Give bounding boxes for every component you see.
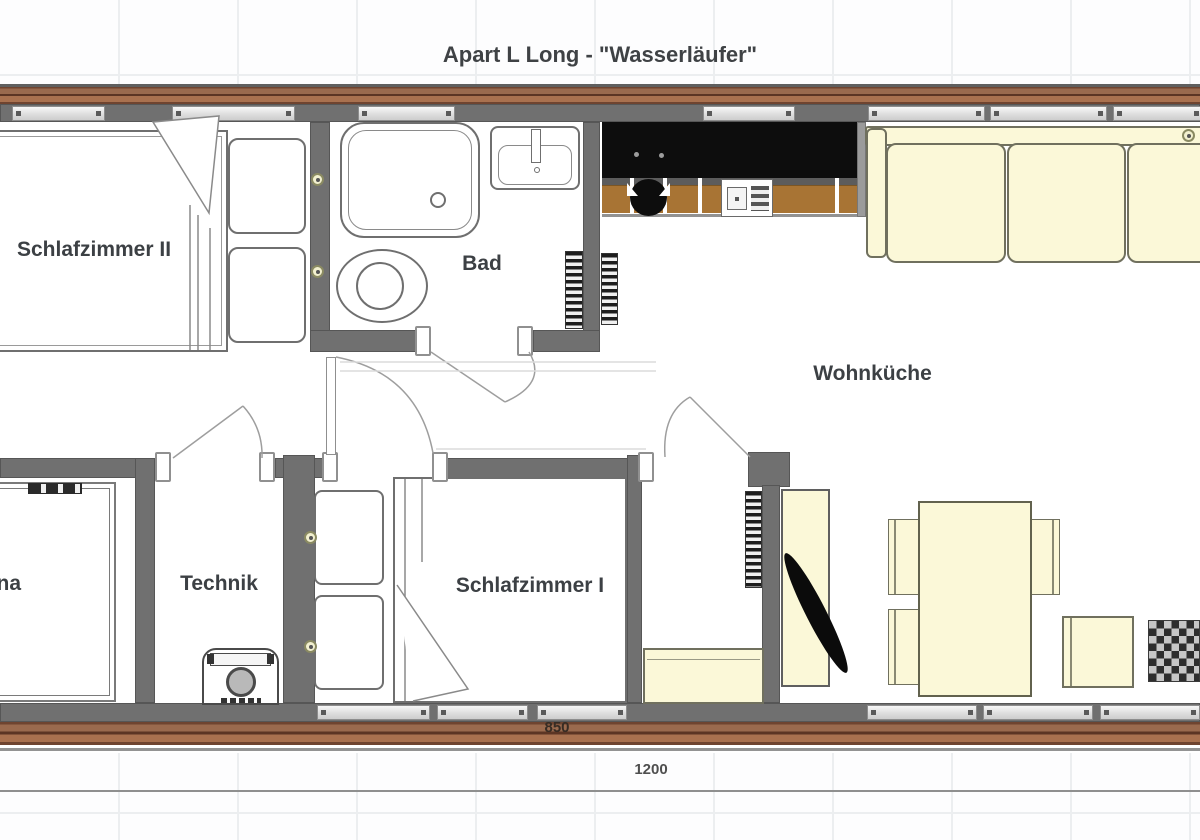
dining-table bbox=[918, 501, 1032, 697]
top-wall-wood bbox=[0, 87, 1200, 104]
sofa-cushion bbox=[1007, 143, 1126, 263]
door-jamb bbox=[322, 452, 338, 482]
bottom-wall-line bbox=[0, 748, 1200, 751]
sauna-heater bbox=[28, 483, 82, 494]
toilet bbox=[336, 249, 428, 323]
window bbox=[867, 705, 977, 720]
bench bbox=[643, 648, 764, 704]
hinge-pivot bbox=[1182, 129, 1195, 142]
wall-pillar bbox=[748, 452, 790, 487]
grid-line bbox=[0, 74, 1200, 76]
door-jamb bbox=[259, 452, 275, 482]
faucet-dot bbox=[659, 153, 664, 158]
entrance-mat bbox=[1148, 620, 1200, 682]
window bbox=[868, 106, 985, 121]
hinge-pivot bbox=[311, 173, 324, 186]
radiator bbox=[601, 253, 618, 325]
chair bbox=[1030, 519, 1060, 595]
window bbox=[537, 705, 627, 720]
window bbox=[358, 106, 455, 121]
chair-back bbox=[892, 520, 896, 594]
shower-tray bbox=[348, 130, 472, 230]
radiator bbox=[745, 491, 762, 588]
faucet bbox=[531, 129, 541, 163]
sofa-armrest bbox=[866, 128, 887, 258]
wall-bad-bottom-right bbox=[533, 330, 600, 352]
toilet-bowl bbox=[356, 262, 404, 310]
chair bbox=[1062, 616, 1134, 688]
washer-knob bbox=[207, 654, 214, 664]
door-jamb bbox=[155, 452, 171, 482]
window bbox=[12, 106, 105, 121]
kitchen-counter-top bbox=[602, 122, 860, 178]
floor-plan: Apart L Long - "Wasserläufer" 850 1200 bbox=[0, 0, 1200, 840]
room-label-sauna: Sauna bbox=[0, 572, 21, 596]
sink-dot bbox=[735, 197, 739, 201]
wall-technik-schlafzimmer1 bbox=[283, 455, 315, 703]
hinge-pivot bbox=[304, 531, 317, 544]
window bbox=[703, 106, 795, 121]
wall-sauna-technik bbox=[135, 458, 155, 703]
chair bbox=[888, 609, 920, 685]
window bbox=[437, 705, 528, 720]
chair-back bbox=[1070, 618, 1072, 686]
wardrobe bbox=[314, 595, 384, 690]
dimension-label-850: 850 bbox=[500, 719, 614, 736]
washer-knob bbox=[267, 654, 274, 664]
door-jamb bbox=[415, 326, 431, 356]
bench-edge bbox=[647, 652, 760, 660]
chair-back bbox=[1052, 520, 1056, 594]
plan-title: Apart L Long - "Wasserläufer" bbox=[0, 42, 1200, 68]
washer-drum bbox=[226, 667, 256, 697]
dimension-label-1200: 1200 bbox=[598, 761, 704, 778]
window bbox=[317, 705, 430, 720]
wall-schlafzimmer1-right bbox=[627, 455, 642, 703]
window bbox=[983, 705, 1093, 720]
chair-back bbox=[892, 610, 896, 684]
bathroom-sink bbox=[490, 126, 580, 190]
window bbox=[1113, 106, 1200, 121]
shower bbox=[340, 122, 480, 238]
grid-line bbox=[0, 812, 1200, 814]
room-label-schlafzimmer2: Schlafzimmer II bbox=[0, 238, 194, 262]
chair bbox=[888, 519, 920, 595]
faucet-dot bbox=[634, 152, 639, 157]
window bbox=[990, 106, 1107, 121]
sofa-cushion bbox=[1127, 143, 1200, 263]
room-label-schlafzimmer1: Schlafzimmer I bbox=[440, 574, 620, 598]
wall-lower-row-a bbox=[0, 458, 157, 478]
kitchen-basin bbox=[630, 179, 667, 216]
wall-bad-right bbox=[583, 122, 600, 352]
washer-panel bbox=[210, 653, 271, 666]
door-leaf bbox=[326, 357, 336, 455]
towel-radiator bbox=[565, 251, 583, 329]
wall-bad-bottom-left bbox=[310, 330, 417, 352]
wardrobe bbox=[228, 247, 306, 343]
wall-schlafzimmer2-bad bbox=[310, 122, 330, 352]
door-jamb bbox=[517, 326, 533, 356]
door-jamb bbox=[432, 452, 448, 482]
wardrobe bbox=[314, 490, 384, 585]
drainer-stripes bbox=[751, 186, 769, 211]
room-label-technik: Technik bbox=[155, 572, 283, 596]
washer-marks bbox=[221, 698, 261, 703]
counter-divider bbox=[835, 178, 839, 213]
room-label-bad: Bad bbox=[432, 252, 532, 276]
counter-divider bbox=[698, 178, 702, 213]
window bbox=[1100, 705, 1200, 720]
hinge-pivot bbox=[311, 265, 324, 278]
window bbox=[172, 106, 295, 121]
room-label-wohnkueche: Wohnküche bbox=[800, 362, 945, 386]
shower-drain bbox=[430, 192, 446, 208]
kitchen-sink-unit bbox=[721, 179, 773, 217]
faucet-dot bbox=[534, 167, 540, 173]
wardrobe bbox=[228, 138, 306, 234]
sink-square bbox=[727, 187, 747, 210]
dimension-line bbox=[0, 790, 1200, 792]
door-jamb bbox=[638, 452, 654, 482]
washing-machine bbox=[202, 648, 279, 705]
sofa-cushion bbox=[886, 143, 1006, 263]
wall-nook-right bbox=[762, 485, 780, 703]
hinge-pivot bbox=[304, 640, 317, 653]
wall-lower-row-c bbox=[434, 458, 640, 478]
